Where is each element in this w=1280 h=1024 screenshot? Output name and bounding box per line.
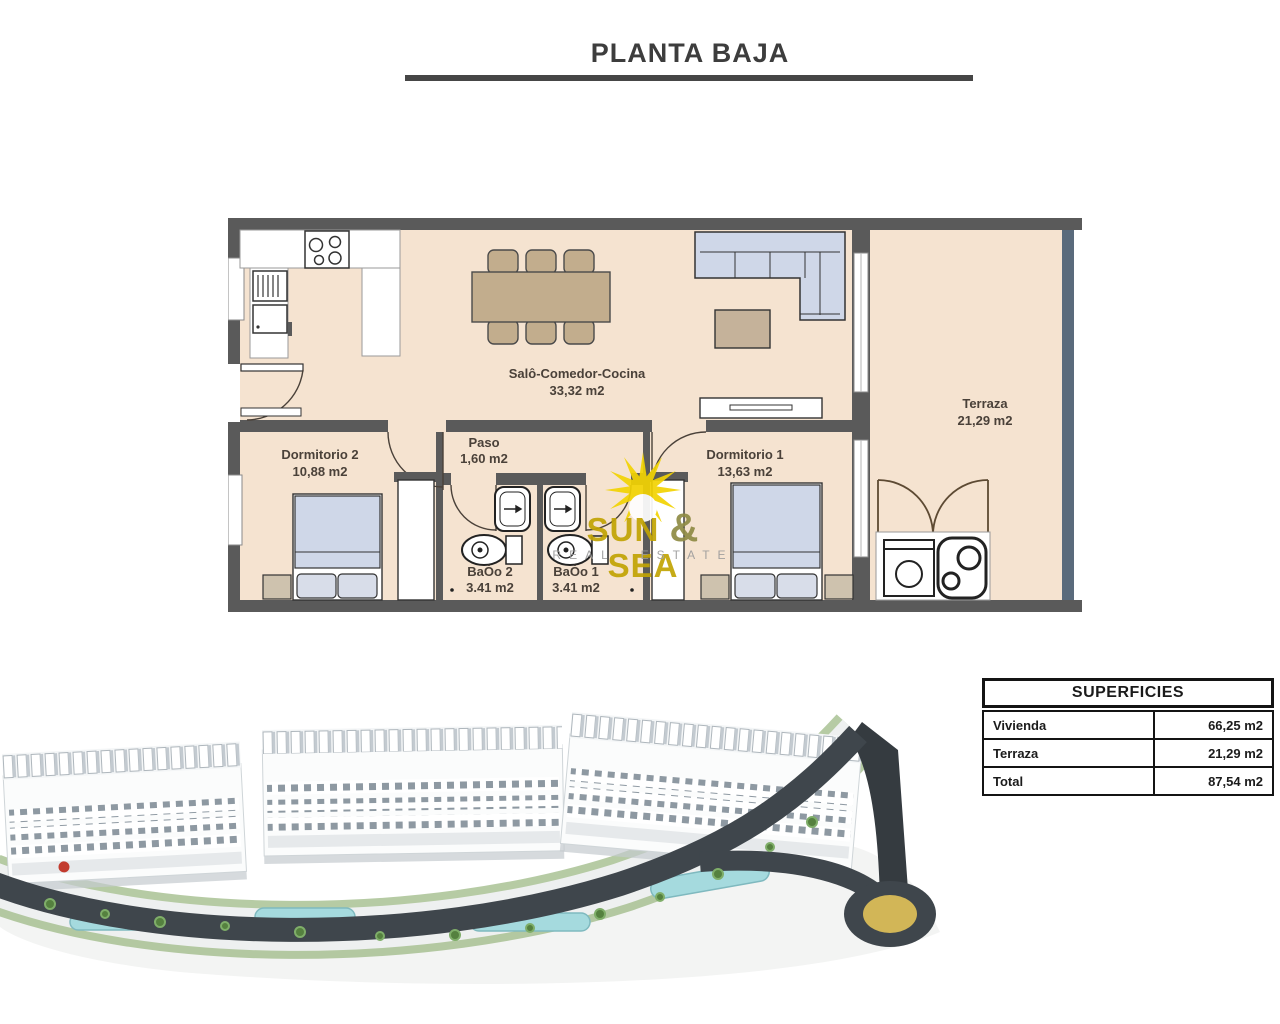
title-underline [405,75,973,81]
row-value: 21,29 m2 [1155,746,1272,761]
wardrobe-dormitorio-2 [394,472,438,600]
mid-wall [240,420,852,432]
page-title-text: PLANTA BAJA [591,38,790,68]
tv-stand [700,398,822,418]
nightstand [701,575,729,599]
room-area-bano-2: 3.41 m2 [466,580,514,595]
room-area-terraza: 21,29 m2 [958,413,1013,428]
room-label-dormitorio-1: Dormitorio 1 [706,447,783,462]
room-label-bano-1: BaȮo 1 [553,564,599,579]
bed-dormitorio-1 [731,483,822,600]
room-area-paso: 1,60 m2 [460,451,508,466]
floor-plan: Salô-Comedor-Cocina 33,32 m2 Paso 1,60 m… [228,218,1082,612]
roundabout [844,881,936,947]
coffee-table [715,310,770,348]
row-value: 87,54 m2 [1155,774,1272,789]
wardrobe-dormitorio-1 [648,472,688,600]
building-block-middle [262,725,564,864]
nightstand [263,575,291,599]
room-label-terraza: Terraza [962,396,1008,411]
row-label: Total [984,768,1155,794]
room-label-dormitorio-2: Dormitorio 2 [281,447,358,462]
room-area-dormitorio-1: 13,63 m2 [718,464,773,479]
nightstand [825,575,853,599]
superficies-table: SUPERFICIES Vivienda 66,25 m2 Terraza 21… [982,678,1274,796]
room-label-bano-2: BaȮo 2 [467,564,513,579]
dining-set [472,250,610,344]
room-label-salon: Salô-Comedor-Cocina [509,366,646,381]
terrace-glass-wall [1062,230,1074,600]
table-row: Vivienda 66,25 m2 [984,712,1272,738]
row-label: Terraza [984,740,1155,766]
page-title: PLANTA BAJA [405,38,975,69]
superficies-header: SUPERFICIES [982,678,1274,708]
complex-aerial-render [0,692,940,1012]
superficies-body: Vivienda 66,25 m2 Terraza 21,29 m2 Total… [982,710,1274,796]
room-area-bano-1: 3.41 m2 [552,580,600,595]
room-label-paso: Paso [468,435,499,450]
bed-dormitorio-2 [293,494,382,600]
building-block-left [2,742,247,892]
room-area-dormitorio-2: 10,88 m2 [293,464,348,479]
table-row: Total 87,54 m2 [984,766,1272,794]
stove-icon [305,231,349,268]
room-area-salon: 33,32 m2 [550,383,605,398]
row-value: 66,25 m2 [1155,718,1272,733]
laundry-area [876,532,990,600]
table-row: Terraza 21,29 m2 [984,738,1272,766]
row-label: Vivienda [984,712,1155,738]
